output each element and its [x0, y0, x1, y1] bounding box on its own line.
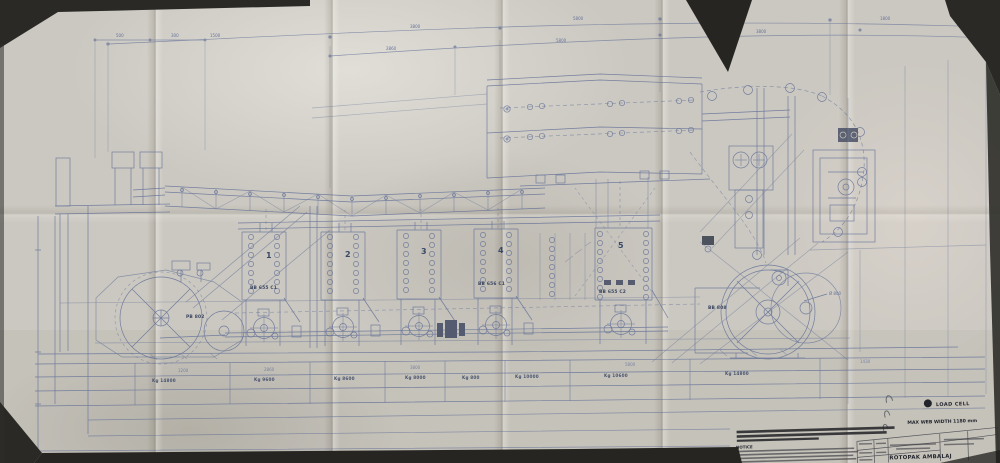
- unit-3-number: 3: [421, 247, 427, 256]
- bottom-dim-3: 3800: [410, 365, 421, 370]
- weight-label-5: Kg 800: [462, 375, 480, 380]
- unit-2-number: 2: [345, 250, 351, 259]
- top-dim-1: 1500: [210, 33, 221, 38]
- top-dim-3: 5800: [573, 16, 584, 21]
- bottom-dim-1: 1200: [178, 368, 189, 373]
- top2-dim-3: 3800: [756, 29, 767, 34]
- notice-heading: NOTICE: [736, 444, 753, 449]
- weight-label-6: Kg 10000: [515, 374, 539, 379]
- unit-1-number: 1: [266, 251, 272, 260]
- bottom-dim-5: 1430: [860, 359, 871, 364]
- topleft-dim-1: 500: [116, 33, 124, 38]
- bottom-dim-2: 2860: [264, 367, 275, 372]
- weight-label-8: Kg 14800: [725, 371, 749, 376]
- top-dim-2: 3800: [410, 24, 421, 29]
- unit-5-code: BB 655 C2: [599, 289, 626, 295]
- roll-diameter-label: Ø 800: [829, 291, 842, 296]
- weight-label-1: Kg 14800: [152, 378, 176, 383]
- blueprint-photo: 1 2 3 4 5 BB 655 C1 BB 656 C1 BB 655 C2 …: [0, 0, 1000, 463]
- weight-label-2: Kg 9600: [254, 377, 275, 382]
- machine-layout-drawing: 1 2 3 4 5 BB 655 C1 BB 656 C1 BB 655 C2 …: [0, 0, 1000, 463]
- unit-1-code: BB 655 C1: [250, 285, 277, 291]
- bottom-dim-4: 5800: [625, 362, 636, 367]
- top-dim-5: 1800: [880, 16, 891, 21]
- unit-5-number: 5: [618, 241, 624, 250]
- unwinder-code: PB 802: [186, 314, 204, 320]
- weight-label-7: Kg 10600: [604, 373, 628, 378]
- rewinder-code: BB 808: [708, 305, 727, 311]
- weight-label-3: Kg 8600: [334, 376, 355, 381]
- weight-label-4: Kg 8000: [405, 375, 426, 380]
- topleft-dim-2: 300: [171, 33, 179, 38]
- top2-dim-2: 5800: [556, 38, 567, 43]
- top2-dim-1: 2860: [386, 46, 397, 51]
- unit-4-number: 4: [498, 246, 504, 255]
- load-cell-label: LOAD CELL: [936, 401, 971, 408]
- unit-4-code: BB 656 C1: [478, 281, 505, 287]
